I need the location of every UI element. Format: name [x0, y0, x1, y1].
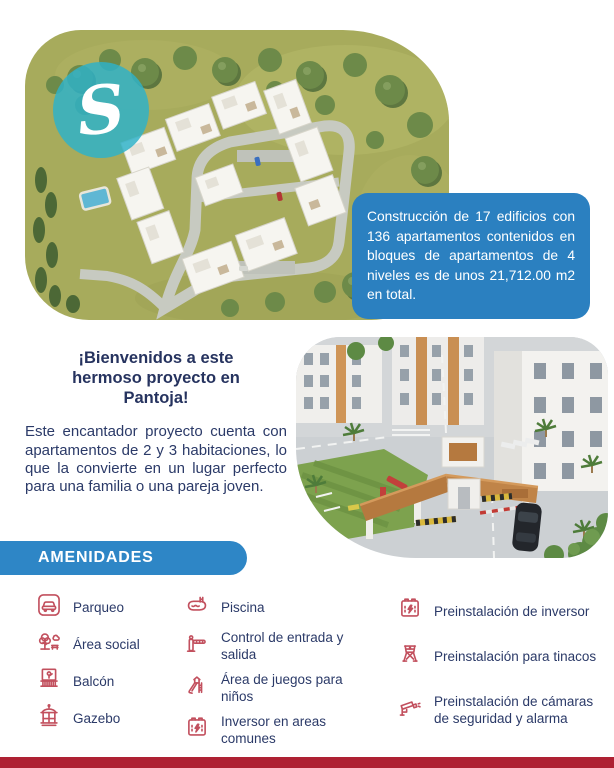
amenity-item-gazebo: Gazebo: [36, 705, 186, 732]
amenity-item-preinst-inversor: Preinstalación de inversor: [397, 592, 597, 630]
amenity-label: Inversor en areas comunes: [221, 713, 362, 747]
entrance-render-image: [296, 337, 608, 558]
amenity-item-preinst-camaras: Preinstalación de cámaras de seguridad y…: [397, 682, 597, 738]
amenity-label: Preinstalación para tinacos: [434, 648, 596, 665]
flyer-page: S Construcción de 17 edificios con 136 a…: [0, 0, 614, 768]
car-icon: [36, 592, 62, 623]
amenity-label: Balcón: [73, 673, 114, 690]
amenity-label: Parqueo: [73, 599, 124, 616]
amenity-item-balcon: Balcón: [36, 668, 186, 695]
amenities-column-2: Piscina Control de entrada y salida Área…: [184, 592, 362, 749]
amenity-item-juegos: Área de juegos para niños: [184, 669, 362, 707]
amenity-item-piscina: Piscina: [184, 592, 362, 623]
amenities-banner: AMENIDADES: [0, 541, 247, 575]
gazebo-icon: [36, 703, 62, 734]
amenities-column-3: Preinstalación de inversor Preinstalació…: [397, 592, 597, 738]
amenity-item-inversor-comunes: Inversor en areas comunes: [184, 711, 362, 749]
amenity-label: Área de juegos para niños: [221, 671, 362, 705]
balcony-icon: [36, 666, 62, 697]
brand-logo: S: [53, 62, 149, 158]
amenity-label: Control de entrada y salida: [221, 629, 362, 663]
amenity-item-preinst-tinacos: Preinstalación para tinacos: [397, 637, 597, 675]
amenity-label: Área social: [73, 636, 140, 653]
amenity-item-control-entrada: Control de entrada y salida: [184, 627, 362, 665]
welcome-heading: ¡Bienvenidos a este hermoso proyecto en …: [43, 349, 269, 408]
battery-inverter-icon: [184, 715, 210, 746]
amenity-label: Piscina: [221, 599, 265, 616]
brand-logo-letter: S: [74, 75, 128, 146]
footer-accent-bar: [0, 757, 614, 768]
barrier-gate-icon: [184, 631, 210, 662]
amenity-item-parqueo: Parqueo: [36, 594, 186, 621]
amenities-column-1: Parqueo Área social Balcón: [36, 594, 186, 732]
amenity-label: Preinstalación de cámaras de seguridad y…: [434, 693, 597, 727]
tree-icon: [36, 629, 62, 660]
construction-info-box: Construcción de 17 edificios con 136 apa…: [352, 193, 590, 319]
construction-info-text: Construcción de 17 edificios con 136 apa…: [367, 207, 575, 305]
battery-inverter-icon: [397, 596, 423, 627]
intro-paragraph: Este encantador proyecto cuenta con apar…: [25, 423, 287, 496]
amenities-title: AMENIDADES: [38, 549, 154, 567]
amenity-label: Preinstalación de inversor: [434, 603, 589, 620]
intro-section: ¡Bienvenidos a este hermoso proyecto en …: [25, 349, 287, 497]
amenity-label: Gazebo: [73, 710, 120, 727]
security-camera-icon: [397, 695, 423, 726]
water-tank-icon: [397, 641, 423, 672]
playground-icon: [184, 673, 210, 704]
pool-icon: [184, 592, 210, 623]
amenity-item-area-social: Área social: [36, 631, 186, 658]
